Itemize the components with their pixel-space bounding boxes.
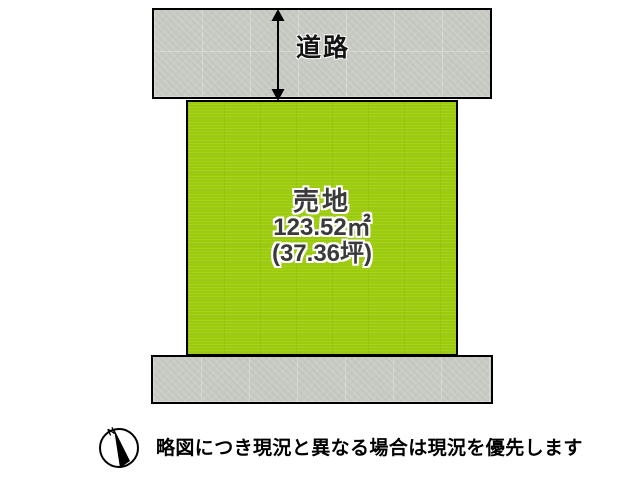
disclaimer-text: 略図につき現況と異なる場合は現況を優先します <box>156 437 583 461</box>
compass-icon: N <box>97 423 141 471</box>
road-width-arrow-icon <box>270 9 286 101</box>
lot-area-m2: 123.52㎡ <box>186 215 458 241</box>
lot-title: 売地 <box>186 187 458 215</box>
road-label: 道路 <box>296 35 350 61</box>
lot-area-tsubo: (37.36坪) <box>186 241 458 267</box>
lot-sketch: 道路 売地 123.52㎡ (37.36坪) N 略図につき現況と異なる場合は現… <box>0 0 640 480</box>
bottom-strip <box>151 355 493 404</box>
lot-caption: 売地 123.52㎡ (37.36坪) <box>186 187 458 267</box>
